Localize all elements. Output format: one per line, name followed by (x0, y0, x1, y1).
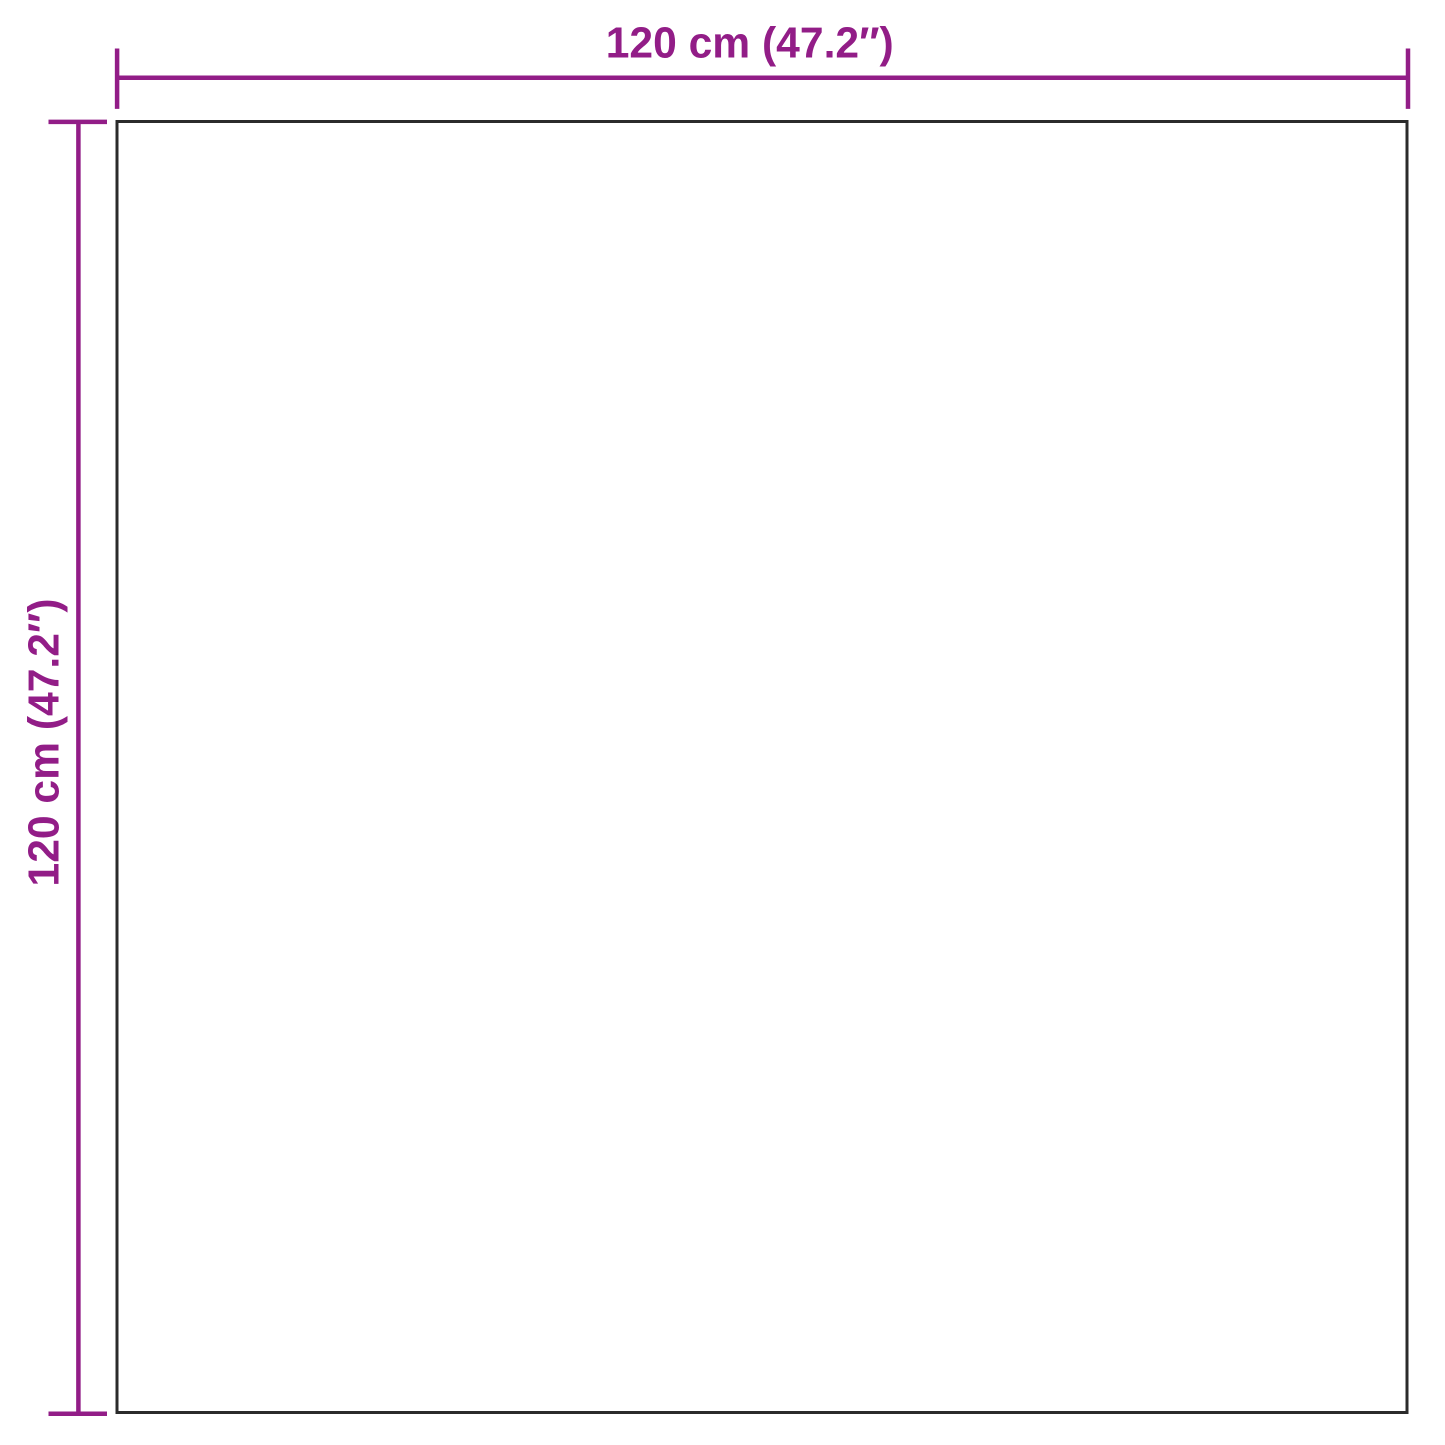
svg-text:120 cm (47.2″): 120 cm (47.2″) (606, 20, 894, 68)
svg-text:120 cm (47.2″): 120 cm (47.2″) (20, 599, 68, 887)
